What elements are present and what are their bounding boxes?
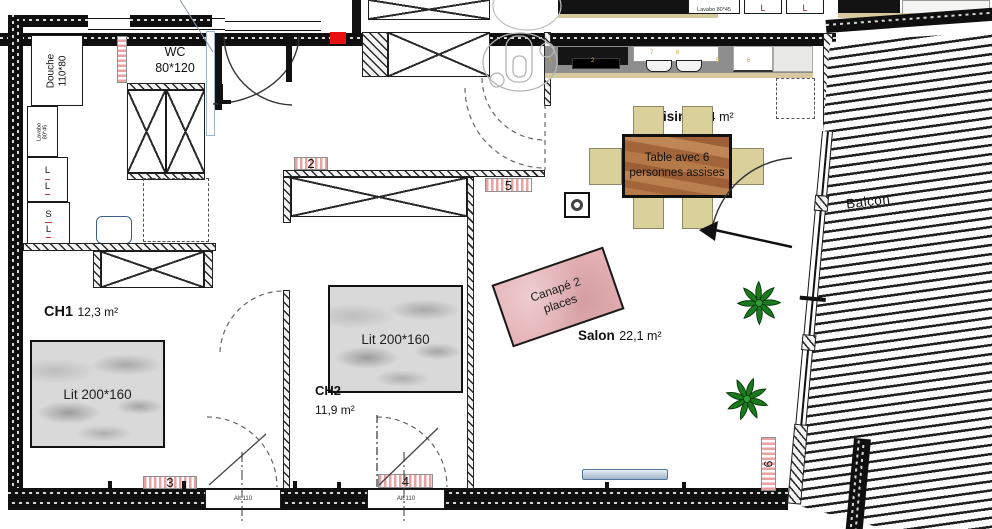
sink-basin xyxy=(646,60,672,72)
neighbor-toilet-icon xyxy=(493,0,561,30)
radiator-bathroom xyxy=(117,36,127,83)
wall-hall xyxy=(362,32,388,77)
plant-icon xyxy=(726,378,768,420)
door-arc-hall xyxy=(465,88,545,168)
chair xyxy=(589,148,622,185)
floor-plan: Lavabo 80*45 L L Balcon Douche 110*80 La… xyxy=(0,0,992,529)
salon-label: Salon 22,1 m² xyxy=(578,327,662,345)
ch2-label: CH2 11,9 m² xyxy=(315,381,355,419)
shower-box: Douche 110*80 xyxy=(31,35,83,106)
pocket-door xyxy=(206,31,215,136)
neighbor-wall-lines xyxy=(225,21,321,31)
wardrobe-hall xyxy=(388,32,490,77)
wall-bathroom-bottom xyxy=(23,243,216,251)
spotlight-icon xyxy=(564,192,590,218)
wall-ch1-ch2 xyxy=(283,290,290,489)
kitchen-unit-number: 2 xyxy=(591,58,594,64)
wall-tick xyxy=(337,482,341,490)
ch1-area: 12,3 m² xyxy=(77,305,118,319)
washer-letter: L xyxy=(45,180,50,195)
radiator-number: 3 xyxy=(166,475,173,490)
bed-ch2: Lit 200*160 xyxy=(328,285,463,393)
salon-name: Salon xyxy=(578,328,615,343)
window-label: Alt.110 xyxy=(234,496,252,502)
window-ch1: Alt.110 xyxy=(205,489,281,509)
chair xyxy=(633,196,664,229)
neighbor-kitchen-block xyxy=(838,0,900,13)
balcony-deck-stripes xyxy=(666,0,992,529)
wardrobe-ch1 xyxy=(101,251,204,288)
radiator-number: 5 xyxy=(505,178,512,193)
wall-ch2-salon xyxy=(467,177,474,489)
kitchen-unit-number: 5 xyxy=(716,58,719,64)
door-arc-ch1 xyxy=(220,291,283,352)
shower-size: 110*80 xyxy=(57,53,69,87)
kitchen-unit-number: 7 xyxy=(650,50,653,56)
neighbor-appliance-letter: L xyxy=(802,3,807,13)
door-leaf-balcony xyxy=(715,230,792,247)
door-arc-entry xyxy=(213,36,299,104)
kitchen-unit xyxy=(773,46,813,72)
door-arc-hall xyxy=(482,78,545,140)
window-post xyxy=(801,334,816,351)
washer-letter: L xyxy=(45,164,50,179)
sideboard xyxy=(582,469,668,480)
dining-table-label: Table avec 6 personnes assises xyxy=(627,151,727,181)
wc-name: WC xyxy=(165,44,186,60)
radiator-2: 2 xyxy=(294,157,328,170)
neighbor-wall-segment xyxy=(130,15,212,27)
dining-table: Table avec 6 personnes assises xyxy=(622,134,732,198)
wall-tick xyxy=(108,481,112,489)
oven xyxy=(572,58,620,69)
dryer-letter: L xyxy=(46,223,51,238)
neighbor-appliance-letter: L xyxy=(760,3,765,13)
radiator-number: 2 xyxy=(307,156,314,171)
counter-edge-strip xyxy=(545,73,813,78)
door-arc-bathroom xyxy=(224,36,292,105)
sink-basin xyxy=(676,60,702,72)
wardrobe-cap xyxy=(127,83,205,90)
radiator-3: 3 xyxy=(143,476,197,489)
dryer-letter: S xyxy=(45,208,51,223)
ch2-name: CH2 xyxy=(315,381,355,401)
bathroom-sink-label: Lavabo 80*45 xyxy=(36,122,49,140)
neighbor-wardrobe xyxy=(368,0,490,20)
radiator-5: 5 xyxy=(485,178,532,192)
wc-room-label: WC 80*120 xyxy=(133,38,217,82)
red-marker xyxy=(330,32,346,44)
wardrobe-cap xyxy=(283,177,291,223)
kitchen-unit-number: 8 xyxy=(676,50,679,56)
neighbor-wall-post xyxy=(352,0,361,33)
plant-icon xyxy=(737,281,780,324)
chair xyxy=(682,196,713,229)
chair xyxy=(731,148,764,185)
wall-tick xyxy=(182,481,186,489)
wall-tick xyxy=(682,482,686,490)
shower-label: Douche xyxy=(46,53,58,87)
radiator-number: 6 xyxy=(762,461,776,468)
neighbor-appliance-box: L xyxy=(786,0,824,14)
dashed-floor-outline xyxy=(143,178,209,242)
wall-tick xyxy=(293,481,297,489)
ch1-name: CH1 xyxy=(44,304,73,320)
kitchen-unit-number: 6 xyxy=(747,58,750,64)
neighbor-lavabo-box: Lavabo 80*45 xyxy=(688,0,740,14)
salon-area: 22,1 m² xyxy=(619,329,661,343)
sofa-label: Canapé 2 places xyxy=(513,269,602,325)
window-ch2: Alt.110 xyxy=(367,489,445,509)
ch1-label: CH1 12,3 m² xyxy=(44,303,118,321)
window-label: Alt.110 xyxy=(397,496,415,502)
dryer-box: S L xyxy=(27,202,70,244)
wardrobe-corridor xyxy=(291,177,467,217)
bath-mat xyxy=(96,216,132,244)
wall-left xyxy=(8,15,23,507)
radiator-number: 4 xyxy=(402,474,409,489)
bathroom-sink-box: Lavabo 80*45 xyxy=(27,106,58,157)
bed-ch2-label: Lit 200*160 xyxy=(361,332,429,347)
bed-ch1: Lit 200*160 xyxy=(30,340,165,448)
spotlight-ring xyxy=(571,199,583,211)
wall-tick xyxy=(605,482,609,490)
window-arc-ch1 xyxy=(207,417,277,487)
radiator-4: 4 xyxy=(378,474,433,488)
window-leaf-ch1 xyxy=(209,434,266,485)
bed-ch1-label: Lit 200*160 xyxy=(63,387,131,402)
fridge xyxy=(733,46,773,72)
wardrobe xyxy=(127,90,166,173)
kitchen-door-swing xyxy=(776,78,815,119)
wardrobe-cap xyxy=(204,251,213,288)
neighbor-counter-strip xyxy=(558,14,718,18)
wardrobe xyxy=(166,90,205,173)
wall-wc-right xyxy=(215,33,222,110)
neighbor-lavabo-label: Lavabo 80*45 xyxy=(697,7,731,13)
neighbor-appliance-box: L xyxy=(744,0,782,14)
washer-box: L L xyxy=(27,157,68,202)
wardrobe-cap xyxy=(93,251,101,288)
window-post xyxy=(814,195,829,212)
wc-size: 80*120 xyxy=(155,60,195,76)
wall-corridor xyxy=(283,170,545,177)
kitchen-unit-number: 1 xyxy=(549,58,552,64)
ch2-area: 11,9 m² xyxy=(315,401,355,419)
radiator-6: 6 xyxy=(761,437,776,491)
